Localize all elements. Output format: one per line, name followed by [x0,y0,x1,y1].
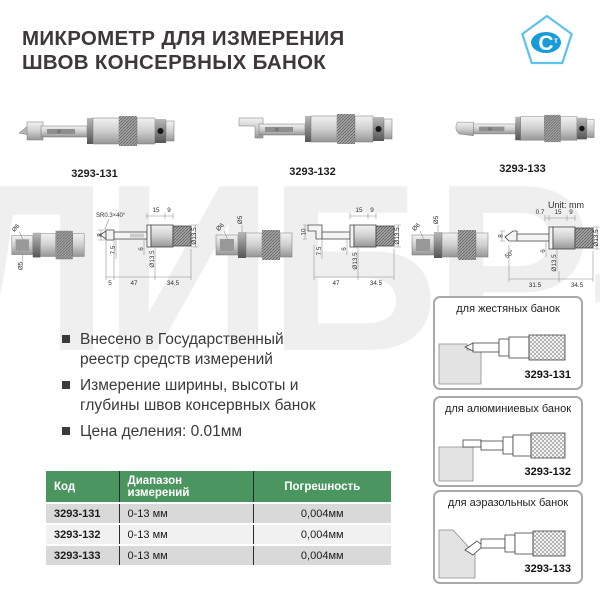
application-box-aerosol-cans: для аэразольных банок 3293-133 [433,490,583,584]
bullet-square-icon [62,427,70,435]
dimension-label: 6 [341,247,348,251]
application-code-label: 3293-132 [525,466,572,478]
cell-range: 0-13 мм [119,503,253,524]
col-header-accuracy: Погрешность [253,471,391,503]
application-caption: для алюминиевых банок [435,403,581,415]
dimension-label: 8 [97,233,104,237]
dimension-label: 34.5 [571,282,584,289]
features-list: Внесено в Государственный реестр средств… [62,330,332,449]
dimension-label: SR0.3×40° [96,213,126,219]
feature-item: Цена деления: 0.01мм [62,422,332,442]
dimension-label: 15 [355,207,363,214]
micrometer-photo-icon [450,102,595,155]
product-photo-3293-132: 3293-132 [230,100,395,178]
dimension-label: Ø13.5 [394,227,401,245]
table-row: 3293-133 0-13 мм 0,004мм [46,545,391,565]
application-box-tin-cans: для жестяных банок 3293-131 [433,296,583,390]
dimension-label: 5 [108,280,112,287]
dimension-label: 9 [569,209,573,216]
dimension-label: 9 [370,207,374,214]
dimension-label: 0.7 [536,209,545,216]
dimension-label: Ø6 [11,223,21,233]
feature-text: Измерение ширины, высоты и глубины швов … [80,376,332,415]
mark-sub-letter: т [554,36,558,45]
dimension-label: Ø5 [18,261,24,270]
product-photo-3293-131: 3293-131 [12,102,177,180]
cell-accuracy: 0,004мм [253,503,391,524]
application-caption: для жестяных банок [435,303,581,315]
dimension-label: 10 [301,228,308,236]
application-code-label: 3293-131 [525,369,572,381]
dimension-drawing-3293-131: 15 9 SR0.3×40° 8 7.5 6 Ø13.5 Ø13.5 5 47 … [95,205,200,298]
dimension-label: Ø6 [215,222,226,233]
dimension-label: 8 [498,234,505,238]
dimension-label: Ø6 [411,222,422,233]
feature-item: Внесено в Государственный реестр средств… [62,330,332,369]
end-view-drawing-133: Ø6 Ø5 [408,215,492,282]
dimension-label: 50° [503,248,516,260]
table-row: 3293-132 0-13 мм 0,004мм [46,524,391,545]
dimension-label: Ø5 [433,215,440,224]
cell-accuracy: 0,004мм [253,545,391,565]
col-header-range: Диапазон измерений [119,471,253,503]
specs-table: Код Диапазон измерений Погрешность 3293-… [46,471,391,565]
pentagon-mark-icon: С т [517,14,577,70]
dimension-label: 34.5 [370,280,383,287]
product-code-label: 3293-133 [450,163,595,175]
dimension-label: Ø5 [237,215,244,224]
feature-text: Внесено в Государственный реестр средств… [80,330,332,369]
end-view-drawing-131: Ø6 Ø5 [8,215,88,282]
cell-range: 0-13 мм [119,545,253,565]
dimension-label: Ø13.5 [593,229,600,247]
dimension-label: 7.5 [316,246,323,255]
dimension-label: Ø13.5 [149,250,156,268]
dimension-drawing-3293-132: 10 15 9 7.5 6 Ø13.5 Ø13.5 47 34.5 [300,205,402,298]
dimension-label: 15 [152,207,160,214]
page-title-line-2: ШВОВ КОНСЕРВНЫХ БАНОК [22,51,326,74]
catalog-page: ЛИБР-М МИКРОМЕТР ДЛЯ ИЗМЕРЕНИЯ ШВОВ КОНС… [0,0,600,600]
table-header-row: Код Диапазон измерений Погрешность [46,471,391,503]
dimension-label: Ø13.5 [191,227,198,245]
dimension-label: 9 [167,207,171,214]
col-header-code: Код [46,471,119,503]
dimension-label: 6 [540,249,547,253]
product-code-label: 3293-132 [230,166,395,178]
application-box-aluminium-cans: для алюминиевых банок 3293-132 [433,396,583,487]
micrometer-photo-icon [15,102,175,160]
dimension-label: 47 [332,280,340,287]
dimension-label: 47 [130,280,138,287]
dimension-drawing-3293-133: 0.7 15 9 8 50° 6 Ø13.5 Ø13.5 31.5 34.5 [497,207,600,300]
application-code-label: 3293-133 [525,563,572,575]
table-row: 3293-131 0-13 мм 0,004мм [46,503,391,524]
micrometer-photo-icon [233,100,393,158]
product-photo-3293-133: 3293-133 [450,102,595,175]
feature-item: Измерение ширины, высоты и глубины швов … [62,376,332,415]
cell-range: 0-13 мм [119,524,253,545]
application-caption: для аэразольных банок [435,497,581,509]
type-approval-mark-logo: С т [517,14,577,75]
dimension-label: 31.5 [529,282,542,289]
feature-text: Цена деления: 0.01мм [80,422,332,442]
dimension-label: Ø13.5 [352,252,359,270]
page-title-line-1: МИКРОМЕТР ДЛЯ ИЗМЕРЕНИЯ [22,27,345,50]
product-code-label: 3293-131 [12,168,177,180]
bullet-square-icon [62,381,70,389]
dimension-label: 34.5 [167,280,180,287]
mark-letter: С [538,32,553,55]
end-view-drawing-132: Ø6 Ø5 [210,215,298,282]
cell-code: 3293-132 [46,524,119,545]
dimension-label: 7.5 [110,245,117,254]
dimension-label: 15 [554,209,562,216]
cell-code: 3293-131 [46,503,119,524]
page-title: МИКРОМЕТР ДЛЯ ИЗМЕРЕНИЯ ШВОВ КОНСЕРВНЫХ … [22,27,345,75]
dimension-label: Ø13.5 [551,254,558,272]
cell-accuracy: 0,004мм [253,524,391,545]
bullet-square-icon [62,335,70,343]
cell-code: 3293-133 [46,545,119,565]
dimension-label: 6 [138,247,145,251]
